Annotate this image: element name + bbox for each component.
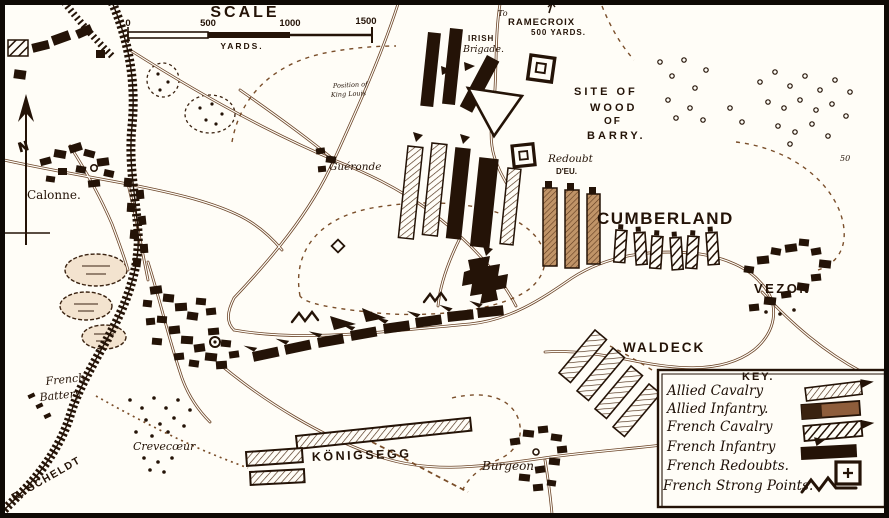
- redoubt-north: [528, 55, 555, 82]
- key-label-allied-infantry: Allied Infantry.: [665, 401, 768, 417]
- label-burgeon: Burgeon: [481, 459, 534, 473]
- key-label-french-cavalry: French Cavalry: [666, 419, 773, 435]
- scale-tick-500: 500: [200, 18, 216, 29]
- label-calonne: Calonne.: [27, 188, 81, 202]
- key-label-french-redoubts: French Redoubts.: [666, 458, 789, 474]
- scale-segment-outline: [128, 32, 208, 38]
- label-irish-brigade: Brigade.: [462, 44, 504, 55]
- label-site-of: SITE OF: [574, 86, 638, 98]
- key-title: KEY.: [742, 371, 774, 383]
- key-label-allied-cavalry: Allied Cavalry: [665, 383, 763, 399]
- label-to: To: [498, 9, 508, 18]
- battle-map: N SCALE 0 500 1000 1500 YARDS. To RAMECR…: [0, 0, 889, 518]
- label-redoubt-deu: D'EU.: [556, 167, 577, 176]
- key-symbol-allied-infantry: [801, 401, 860, 419]
- label-barry: BARRY.: [587, 130, 646, 142]
- label-of: OF: [604, 116, 622, 127]
- label-crevecoeur: Crevecœur: [133, 440, 196, 453]
- label-ramecroix-dist: 500 YARDS.: [531, 28, 586, 37]
- scale-title: SCALE: [210, 4, 279, 21]
- label-ramecroix: RAMECROIX: [508, 17, 575, 28]
- label-waldeck: WALDECK: [623, 340, 705, 355]
- cumberland-infantry-bars: [543, 181, 600, 268]
- scale-tick-0: 0: [125, 18, 130, 29]
- label-gueronde: Guéronde: [329, 161, 381, 173]
- scale-segment-solid: [208, 32, 290, 38]
- scale-tick-1000: 1000: [279, 18, 300, 29]
- scale-units: YARDS.: [220, 41, 263, 51]
- redoubt-deu-square: [512, 144, 535, 167]
- label-contour-50: 50: [840, 154, 850, 163]
- label-vezon: VEZON: [754, 281, 811, 296]
- battle-map-page: N SCALE 0 500 1000 1500 YARDS. To RAMECR…: [0, 0, 889, 518]
- label-cumberland: CUMBERLAND: [597, 209, 734, 228]
- label-redoubt: Redoubt: [547, 153, 594, 165]
- label-irish: IRISH: [468, 34, 494, 43]
- scale-tick-1500: 1500: [355, 16, 376, 27]
- label-wood: WOOD: [590, 102, 637, 114]
- key-label-french-strong-points: French Strong Points.: [662, 478, 813, 494]
- key-label-french-infantry: French Infantry: [666, 439, 776, 455]
- key-legend: KEY. Allied Cavalry Allied Infantry. Fre…: [658, 370, 885, 507]
